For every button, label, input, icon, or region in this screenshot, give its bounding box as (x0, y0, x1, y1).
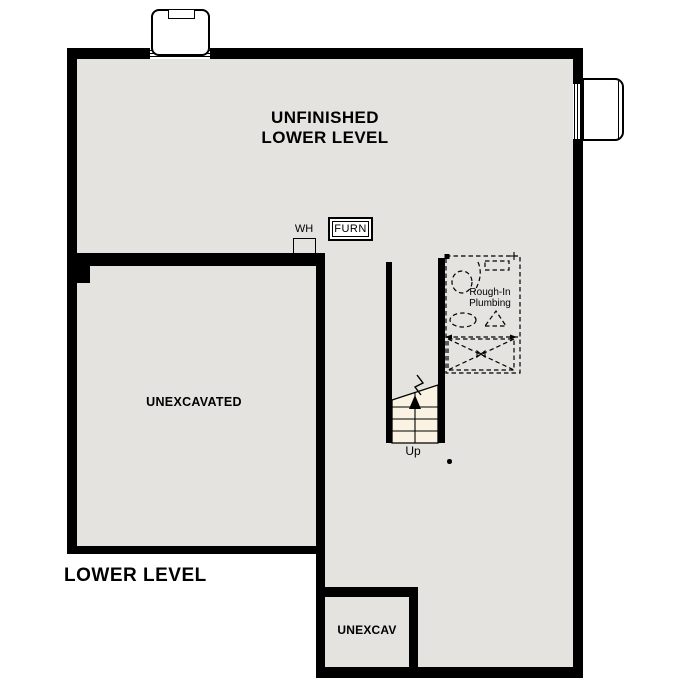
rough-in-plumbing-label: Rough-In Plumbing (462, 287, 518, 309)
wall-step-block (77, 266, 90, 283)
window-well-top-notch (168, 9, 195, 19)
water-heater-label: WH (288, 223, 320, 235)
wall-unexcav-bump-top (325, 587, 418, 597)
room-label-unfinished-lower-level: UNFINISHED LOWER LEVEL (235, 108, 415, 147)
sink-icon (450, 313, 476, 327)
window-glazing-line (577, 84, 578, 139)
room-label-unexcavated: UNEXCAVATED (96, 395, 292, 409)
window-well-right-inner-line (618, 81, 619, 139)
floor-plan: FURN WH Up (0, 0, 687, 687)
furnace-label: FURN (332, 221, 369, 237)
point-marker-dot (447, 459, 452, 464)
wall-unexcav-bump-right (409, 587, 418, 667)
wall-right-lower-segment (573, 139, 583, 678)
window-glazing-line (150, 56, 210, 57)
wall-unexcavated-bottom (67, 546, 325, 554)
rough-in-plumbing-area (440, 248, 525, 378)
wall-top-left-segment (67, 48, 150, 59)
furnace-box: FURN (328, 217, 373, 241)
corner-square-dot (445, 254, 450, 259)
water-heater-box (293, 238, 316, 254)
staircase (380, 372, 450, 447)
room-label-unexcav: UNEXCAV (325, 623, 409, 637)
drain-icon (485, 311, 506, 326)
bowtie-icon (477, 351, 485, 357)
stair-direction-label: Up (393, 444, 433, 458)
floor-unfinished-lower-level (77, 58, 573, 253)
plus-mark-icon (510, 252, 518, 260)
wall-divider-unexcavated-top (67, 253, 325, 266)
wall-bottom (316, 667, 583, 678)
wall-left (67, 48, 77, 554)
wall-top-right-segment (210, 48, 583, 59)
plan-title: LOWER LEVEL (64, 565, 207, 587)
wall-unexcavated-right (316, 253, 325, 678)
tank-icon (485, 261, 509, 270)
window-glazing-line (574, 84, 575, 139)
